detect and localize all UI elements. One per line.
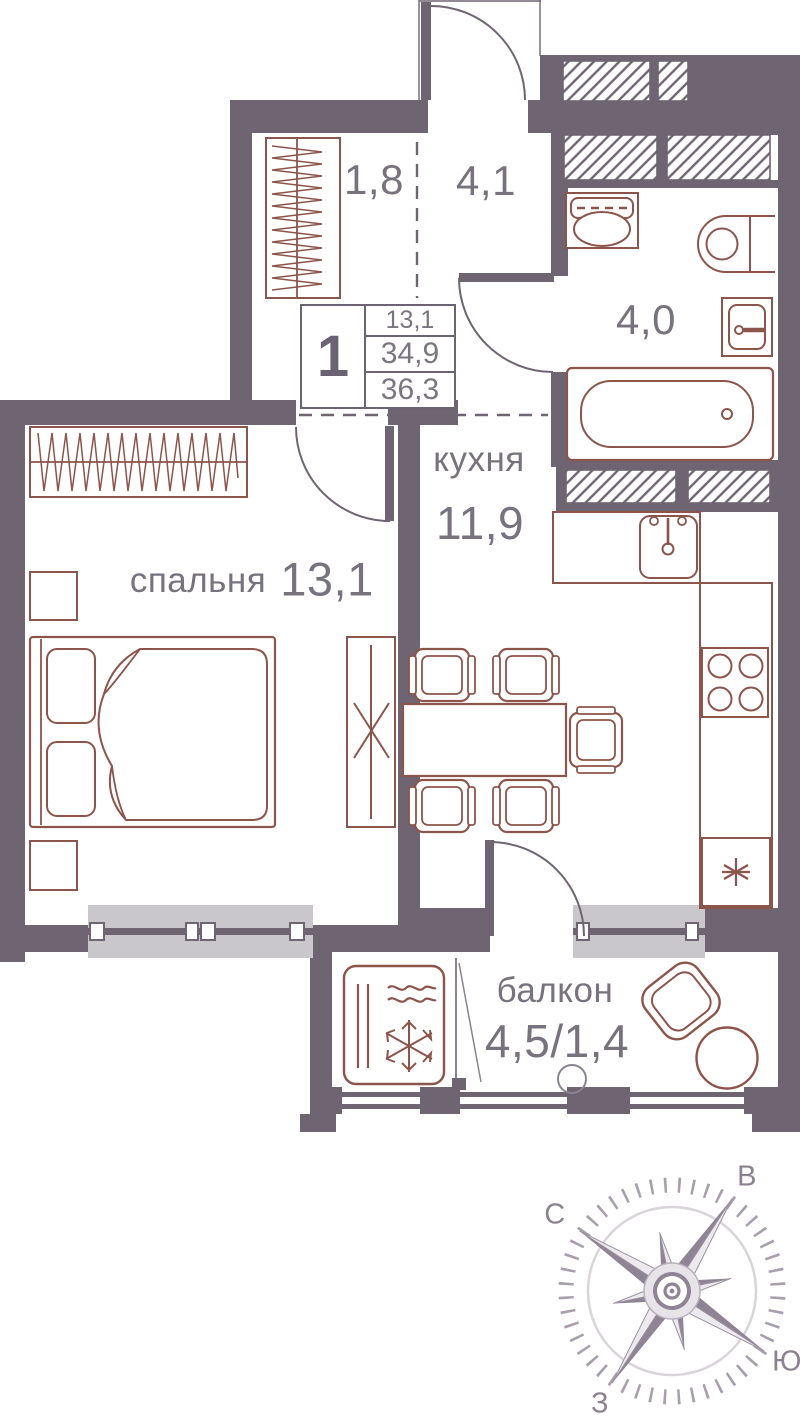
wall-shaft-edge-right (770, 467, 780, 507)
dining-chair (493, 780, 559, 832)
nightstand-top (30, 572, 77, 620)
wall-hall-left (230, 100, 252, 420)
entrance-door-arc (431, 6, 525, 100)
stove-icon (702, 648, 768, 717)
vent-shaft-bath-1 (564, 135, 657, 180)
ac-unit-icon (344, 966, 444, 1084)
vent-shaft-exterior-1 (563, 61, 650, 101)
wall-bedroom-top-left (0, 400, 296, 425)
entrance-door-leaf (421, 2, 431, 100)
toilet-icon (566, 193, 638, 248)
bedroom-area-label: 13,1 (280, 552, 373, 607)
dining-set (403, 649, 622, 832)
bed-icon (30, 637, 275, 827)
rooms-count: 1 (302, 306, 366, 407)
kitchen-fixtures (403, 512, 772, 908)
hallway-wardrobe-icon (266, 138, 340, 298)
pillow-bottom (47, 742, 95, 816)
wall-under-tub (556, 460, 780, 470)
balcony-partition-stub (452, 1078, 466, 1090)
bedroom-door-leaf (385, 426, 394, 521)
bedroom-door-arc (296, 427, 390, 521)
dining-chair (409, 780, 475, 832)
total-area-value: 36,3 (366, 371, 454, 407)
living-area-value: 13,1 (366, 306, 454, 335)
drying-rack-icon (347, 637, 395, 827)
blanket (99, 649, 267, 820)
floor-plan: 1,8 4,1 4,0 кухня 11,9 спальня 13,1 балк… (0, 0, 800, 1418)
compass-north-label: С (544, 1199, 565, 1232)
unit-info-box: 1 13,1 34,9 36,3 (300, 304, 456, 409)
bathtub-icon (567, 368, 773, 460)
dining-chair (570, 707, 622, 773)
compass-south-label: Ю (772, 1346, 800, 1379)
balcony-glazing (310, 1087, 800, 1114)
bedroom-name-label: спальня (130, 561, 266, 601)
bathroom-door-leaf (459, 273, 554, 282)
hallway-area-label: 4,1 (456, 157, 516, 205)
balcony-table-icon (697, 1028, 758, 1089)
dining-chair (409, 649, 475, 701)
compass-east-label: В (737, 1161, 757, 1194)
wall-kitchen-bottom-left (420, 908, 490, 952)
wall-shaft-bottom (556, 503, 780, 512)
floor-plan-svg (0, 0, 800, 1418)
dining-table (403, 704, 566, 776)
wall-left-outer (0, 400, 25, 962)
bathroom-door-arc (459, 278, 553, 372)
balcony-partition-leaf (459, 963, 481, 1082)
kitchen-name-label: кухня (433, 440, 525, 480)
washbasin-icon (698, 216, 775, 272)
wall-shaft-separator (676, 467, 688, 507)
vent-shaft-kitchen-1 (566, 470, 676, 503)
wall-bedroom-bottom-left (0, 925, 90, 952)
main-area-value: 34,9 (366, 335, 454, 371)
fridge-icon (702, 838, 770, 906)
bedroom-furniture (30, 427, 395, 890)
pillow-top (47, 649, 95, 723)
balcony-door-arc (490, 842, 584, 936)
compass-rose (520, 1139, 800, 1418)
vent-shaft-bath-2 (667, 135, 770, 180)
wardrobe-area-label: 1,8 (344, 156, 404, 204)
wall-bath-shaft-separator (657, 135, 667, 180)
balcony-name-label: балкон (497, 971, 614, 1011)
vent-shaft-exterior-2 (658, 61, 688, 101)
kitchen-area-label: 11,9 (436, 496, 524, 550)
balcony-area-label: 4,5/1,4 (485, 1014, 629, 1068)
balcony-door-leaf (485, 840, 494, 936)
kitchen-sink-icon (640, 516, 697, 578)
wall-hall-top (230, 100, 428, 133)
wall-balcony-corner-right (752, 1114, 800, 1132)
wall-kitchen-bottom-right (703, 908, 800, 952)
wall-bath-shaft-bottom (553, 180, 780, 188)
wall-balcony-corner-left (300, 1114, 336, 1132)
dining-chair (493, 649, 559, 701)
wall-right-outer (778, 105, 800, 1115)
bedroom-wardrobe-icon (30, 427, 247, 497)
wall-bedroom-bottom-right (311, 925, 402, 952)
vent-shaft-kitchen-2 (688, 470, 770, 503)
service-hatch-icon (722, 298, 772, 356)
wall-shaft-edge-left (556, 467, 566, 507)
compass-west-label: З (591, 1388, 609, 1418)
nightstand-bottom (30, 841, 77, 890)
bathroom-area-label: 4,0 (616, 296, 676, 344)
wall-bathroom-top (556, 105, 800, 135)
